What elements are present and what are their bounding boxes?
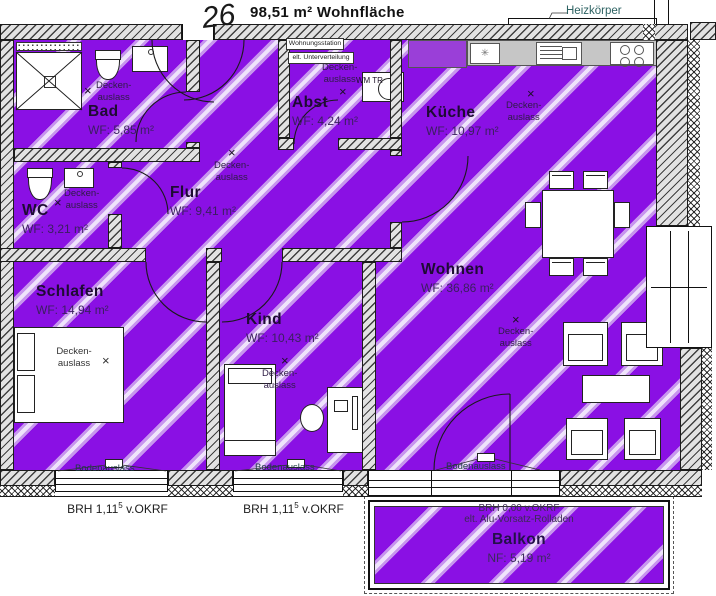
stairwell-line xyxy=(654,0,655,26)
oven-symbol xyxy=(536,42,582,65)
label-line: Decken- xyxy=(262,368,297,380)
room-label-kind: Kind WF: 10,43 m² xyxy=(246,311,319,345)
room-label-schlafen: Schlafen WF: 14,94 m² xyxy=(36,283,109,317)
ceiling-outlet-marker: × xyxy=(527,87,535,100)
brh-text: v.OKRF xyxy=(123,502,168,516)
label-line: Decken- xyxy=(506,100,541,112)
room-area: WF: 14,94 m² xyxy=(36,303,109,317)
insulation xyxy=(643,24,655,40)
armchair-symbol xyxy=(624,418,661,460)
wall-bad-right xyxy=(186,142,200,148)
room-area: WF: 10,43 m² xyxy=(246,331,319,345)
room-area: NF: 5,19 m² xyxy=(368,551,670,565)
wall-corridor-south xyxy=(0,248,146,262)
armchair-symbol xyxy=(566,418,608,460)
window-glass xyxy=(56,478,167,485)
wall-south xyxy=(168,470,233,486)
sill-label-kind: BRH 1,115 v.OKRF xyxy=(236,501,351,516)
floor-outlet-label-schlafen: Bodenauslass xyxy=(75,463,135,474)
wall-corner xyxy=(690,22,716,40)
pillow-symbol xyxy=(17,333,35,371)
ceiling-outlet-label-schlafen: Decken-auslass xyxy=(42,346,106,370)
wall-corridor-south xyxy=(282,248,402,262)
chair-symbol xyxy=(549,258,574,276)
floor-plan: 26 98,51 m² Wohnfläche Heizkörper WM TR … xyxy=(0,0,716,596)
total-area-title: 98,51 m² Wohnfläche xyxy=(250,4,405,21)
label-line: Decken- xyxy=(214,160,249,172)
ceiling-outlet-marker: × xyxy=(84,84,92,97)
wall-south xyxy=(560,470,702,486)
sink-symbol-wc xyxy=(64,168,94,188)
ceiling-outlet-label-kueche: Decken-auslass xyxy=(506,100,541,124)
wall-abst-bottom xyxy=(278,138,294,150)
station-label-1: Wohnungsstation xyxy=(286,38,344,50)
label-line: auslass xyxy=(42,358,106,370)
room-name: Bad xyxy=(88,103,154,121)
ceiling-outlet-label-kind: Decken-auslass xyxy=(262,368,297,392)
label-line: Decken- xyxy=(64,188,99,200)
washer-label: WM TR xyxy=(356,76,383,85)
wall-wc-right xyxy=(108,162,122,168)
kitchen-cabinet-symbol xyxy=(408,40,467,68)
label-line: Decken- xyxy=(42,346,106,358)
wall xyxy=(0,24,182,40)
insulation xyxy=(168,486,233,496)
wall xyxy=(656,40,688,226)
window-glass xyxy=(234,478,342,485)
wall-bad-right xyxy=(186,40,200,92)
insulation xyxy=(688,40,700,226)
room-name: Küche xyxy=(426,104,499,122)
room-name: Wohnen xyxy=(421,261,494,279)
floor-outlet-label-kind: Bodenauslass xyxy=(255,462,315,473)
label-line: Decken- xyxy=(96,80,131,92)
burner-icon xyxy=(634,45,644,55)
radiator-label: Heizkörper xyxy=(566,5,622,17)
desk-chair-symbol xyxy=(300,404,324,432)
room-name: Flur xyxy=(170,184,236,202)
chair-symbol xyxy=(583,171,608,189)
ceiling-outlet-marker: × xyxy=(512,313,520,326)
label-line: auslass xyxy=(262,380,297,392)
room-area: WF: 3,21 m² xyxy=(22,222,88,236)
brh-text: BRH 1,11 xyxy=(67,502,118,516)
insulation xyxy=(343,486,368,496)
room-name: Abst xyxy=(292,94,358,112)
wall-kind-wohnen xyxy=(362,262,376,470)
room-name: Balkon xyxy=(368,531,670,549)
ceiling-outlet-label-bad: Decken-auslass xyxy=(96,80,131,104)
room-label-wohnen: Wohnen WF: 36,86 m² xyxy=(421,261,494,295)
wall-wc-right xyxy=(108,214,122,248)
burner-icon xyxy=(620,57,630,67)
brh-text: v.OKRF xyxy=(299,502,344,516)
wall-outer-line xyxy=(0,496,702,497)
room-label-flur: Flur WF: 9,41 m² xyxy=(170,184,236,218)
label-line: auslass xyxy=(214,172,249,184)
insulation xyxy=(0,486,55,496)
brh-text: BRH 1,11 xyxy=(243,502,294,516)
bath-shelf-symbol xyxy=(16,42,82,51)
window-mullion xyxy=(511,471,512,495)
ceiling-outlet-marker: × xyxy=(281,354,289,367)
pillow-symbol xyxy=(17,375,35,413)
wall-schlafen-kind xyxy=(206,262,220,470)
insulation xyxy=(560,486,702,496)
balcony-door-window xyxy=(368,470,560,496)
wall-south xyxy=(343,470,368,486)
room-label-balkon: Balkon NF: 5,19 m² xyxy=(368,531,670,565)
chair-symbol xyxy=(525,202,541,228)
ceiling-outlet-marker: × xyxy=(339,85,347,98)
dining-table-symbol xyxy=(542,190,614,258)
burner-icon xyxy=(620,45,630,55)
shower-symbol xyxy=(16,52,82,110)
window-mullion xyxy=(431,471,432,495)
kitchen-sink-symbol: ✳ xyxy=(470,43,500,64)
balcony-shutter-label: elt. Alu-Vorsatz-Rolladen xyxy=(368,514,670,525)
ceiling-outlet-label-flur: Decken-auslass xyxy=(214,160,249,184)
sill-label-schlafen: BRH 1,115 v.OKRF xyxy=(60,501,175,516)
chair-symbol xyxy=(614,202,630,228)
stove-symbol xyxy=(610,42,654,65)
window-kind xyxy=(233,470,343,492)
desk-shelf-symbol xyxy=(352,396,358,430)
room-area: WF: 9,41 m² xyxy=(170,204,236,218)
insulation xyxy=(702,348,712,470)
wall-flur-wohnen xyxy=(390,222,402,248)
window-mullion xyxy=(651,287,707,288)
wall-flur-wohnen xyxy=(390,150,402,156)
ceiling-outlet-label-wc: Decken-auslass xyxy=(64,188,99,212)
wall-abst-kueche xyxy=(390,40,402,138)
window-wohnen-east xyxy=(646,226,712,348)
coffee-table-symbol xyxy=(582,375,650,403)
wall-south xyxy=(0,470,55,486)
station-label-2: elt. Unterverteilung xyxy=(288,52,354,64)
armchair-symbol xyxy=(563,322,608,366)
room-label-kueche: Küche WF: 10,97 m² xyxy=(426,104,499,138)
oven-door xyxy=(562,47,577,60)
room-area: WF: 10,97 m² xyxy=(426,124,499,138)
label-line: auslass xyxy=(506,112,541,124)
floor-outlet-label-wohnen: Bodenauslass xyxy=(446,461,506,472)
room-area: WF: 5,85 m² xyxy=(88,123,154,137)
window-glass xyxy=(369,480,559,488)
label-line: auslass xyxy=(96,92,131,104)
label-line: auslass xyxy=(64,200,99,212)
room-area: WF: 36,86 m² xyxy=(421,281,494,295)
chair-symbol xyxy=(549,171,574,189)
shower-drain xyxy=(44,76,56,88)
wall xyxy=(680,348,702,470)
room-label-abst: Abst WF: 4,24 m² xyxy=(292,94,358,128)
ceiling-outlet-marker: × xyxy=(102,354,110,367)
room-area: WF: 4,24 m² xyxy=(292,114,358,128)
wall-corridor-south xyxy=(206,248,222,262)
oven-vent xyxy=(540,46,562,61)
room-name: Kind xyxy=(246,311,319,329)
chair-symbol xyxy=(583,258,608,276)
room-name: Schlafen xyxy=(36,283,109,301)
bed-footboard xyxy=(224,440,276,441)
balcony-sill-label: BRH 0,00 v.OKRF xyxy=(368,503,670,514)
wall-abst-bottom xyxy=(338,138,402,150)
burner-icon xyxy=(634,57,644,67)
label-line: auslass xyxy=(498,338,533,350)
sink-symbol-bad xyxy=(132,46,168,72)
ceiling-outlet-marker: × xyxy=(54,196,62,209)
room-label-bad: Bad WF: 5,85 m² xyxy=(88,103,154,137)
apartment-number: 26 xyxy=(200,0,237,36)
ceiling-outlet-label-abst: Decken-auslass xyxy=(322,62,357,86)
label-line: Decken- xyxy=(498,326,533,338)
ceiling-outlet-label-wohnen: Decken-auslass xyxy=(498,326,533,350)
stairwell-line xyxy=(668,0,669,26)
monitor-symbol xyxy=(334,400,348,412)
wall-bad-bottom xyxy=(14,148,200,162)
ceiling-outlet-marker: × xyxy=(228,146,236,159)
